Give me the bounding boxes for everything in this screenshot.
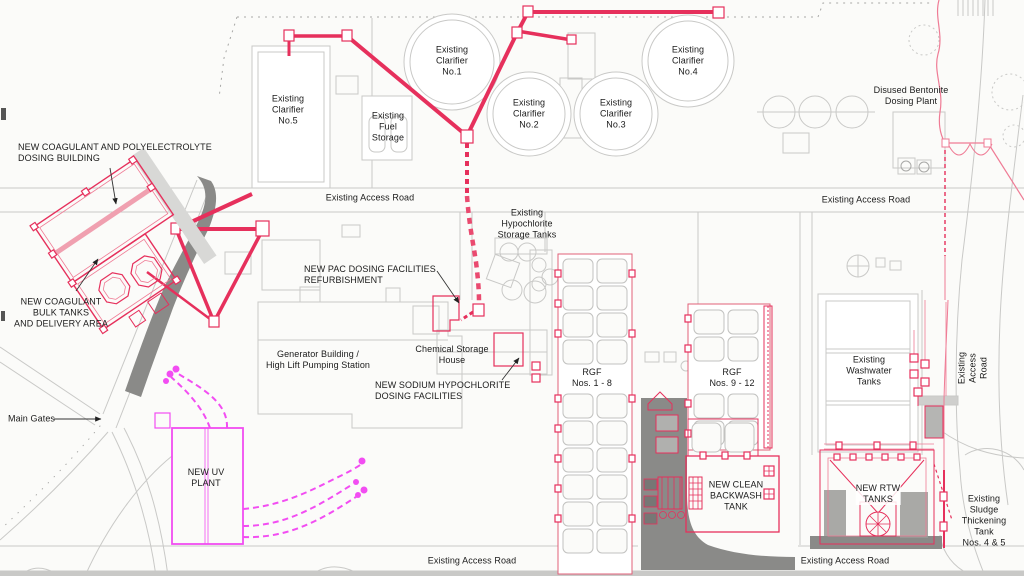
site-plan-svg: [0, 0, 1024, 576]
rgf-block-1-8: [555, 254, 635, 574]
site-plan-drawing: NEW COAGULANT AND POLYELECTROLYTE DOSING…: [0, 0, 1024, 576]
coagulant-building-shapes: [29, 148, 224, 345]
edge-mark: [1, 311, 5, 321]
sludge-tanks-outline: [940, 430, 1024, 576]
sodium-hypochlorite-facility: [494, 333, 523, 366]
bentonite-plant-outline: [757, 96, 945, 174]
clarifier-2: [487, 72, 571, 156]
clarifier-4: [642, 15, 734, 107]
pac-facility: [433, 296, 459, 331]
generator-building-outline: [258, 287, 462, 428]
clarifier-5: [252, 46, 330, 188]
bulk-tank-octagons: [95, 249, 166, 311]
uv-plant: [155, 366, 368, 545]
washwater-tanks: [818, 255, 918, 452]
clarifier-3: [574, 72, 658, 156]
hypochlorite-tanks-outline: [486, 238, 558, 303]
edge-mark: [1, 108, 6, 120]
bottom-road-band: [0, 571, 1024, 576]
